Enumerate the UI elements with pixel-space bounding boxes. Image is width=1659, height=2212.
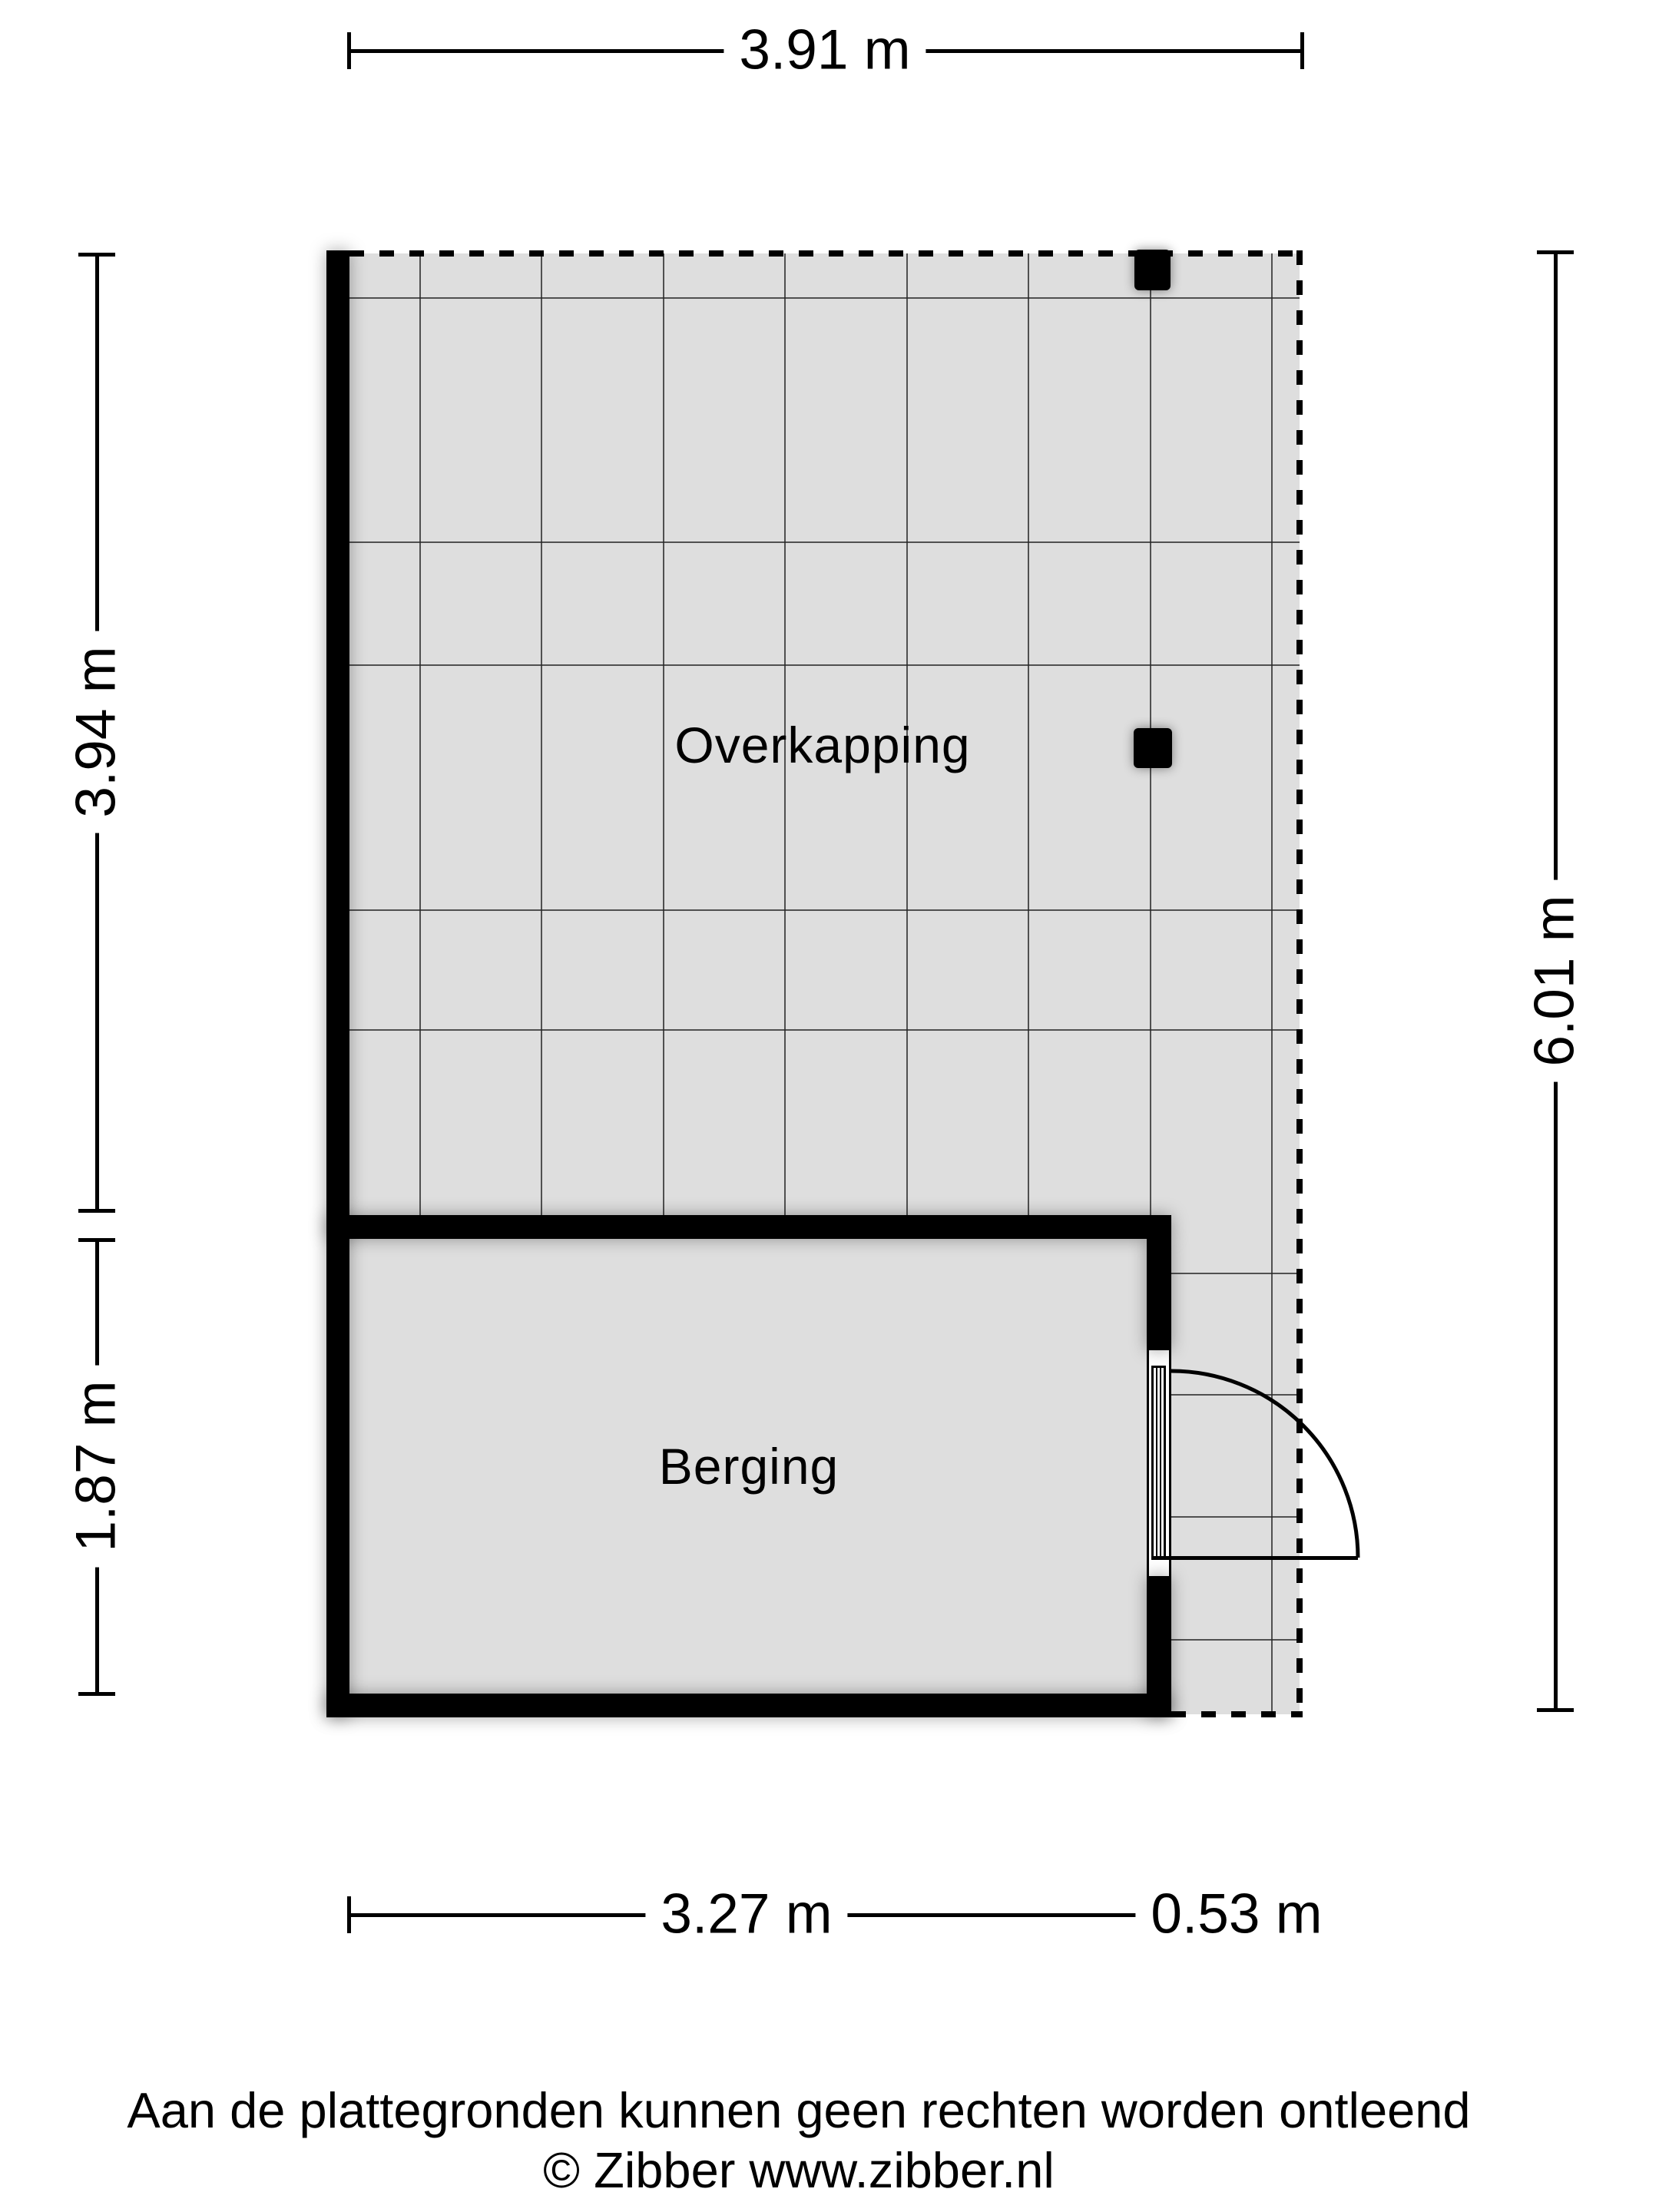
dim-left-berging-tick [78, 1238, 115, 1242]
door-swing-arc [1171, 1371, 1358, 1558]
berging-top-wall [326, 1215, 1171, 1239]
post-top-right [1134, 250, 1171, 290]
dim-left-berging-label: 1.87 m [68, 1365, 127, 1567]
tile-grid-line-h [1171, 1273, 1300, 1274]
tile-grid-line-v [1271, 253, 1273, 1215]
tile-grid-line-v [419, 253, 421, 1215]
berging-right-wall-upper [1147, 1239, 1171, 1350]
tile-grid-line-v [1028, 253, 1029, 1215]
dim-top-width-tick [1300, 32, 1304, 69]
dim-bottom-berging-label: 3.27 m [645, 1886, 847, 1945]
dim-right-total-tick [1537, 1708, 1574, 1712]
footer-copyright: © Zibber www.zibber.nl [0, 2143, 1598, 2198]
berging-bottom-wall [326, 1694, 1171, 1717]
bottom-dashed-edge [1171, 1711, 1303, 1717]
tile-grid-line-v [663, 253, 664, 1215]
tile-grid-line-h [1171, 1639, 1300, 1641]
tile-grid-line-h [349, 541, 1300, 543]
tile-grid-line-h [349, 297, 1300, 299]
floorplan-canvas: 3.91 m3.94 m1.87 m6.01 m3.27 m0.53 mOver… [0, 0, 1659, 2212]
post-middle-right [1134, 728, 1172, 768]
left-wall [326, 250, 349, 1717]
dim-top-width-tick [347, 32, 351, 69]
dim-right-total-label: 6.01 m [1526, 879, 1585, 1081]
dim-bottom-berging-tick [347, 1896, 351, 1933]
dim-right-total-tick [1537, 250, 1574, 254]
dim-left-overkapping-label: 3.94 m [68, 631, 127, 833]
tile-grid-line-h [349, 909, 1300, 911]
dim-left-overkapping-tick [78, 1209, 115, 1213]
dim-left-overkapping-tick [78, 253, 115, 257]
tile-grid-line-h [349, 664, 1300, 666]
footer-disclaimer: Aan de plattegronden kunnen geen rechten… [0, 2083, 1598, 2138]
dim-bottom-strip-label: 0.53 m [1135, 1886, 1337, 1945]
room-label-overkapping: Overkapping [674, 716, 970, 774]
tile-grid-line-v [541, 253, 542, 1215]
dim-left-berging-tick [78, 1692, 115, 1696]
dim-top-width-label: 3.91 m [724, 22, 926, 81]
door-leaf [1151, 1366, 1166, 1556]
room-label-berging: Berging [659, 1437, 839, 1495]
tile-grid-line-h [349, 1029, 1300, 1031]
